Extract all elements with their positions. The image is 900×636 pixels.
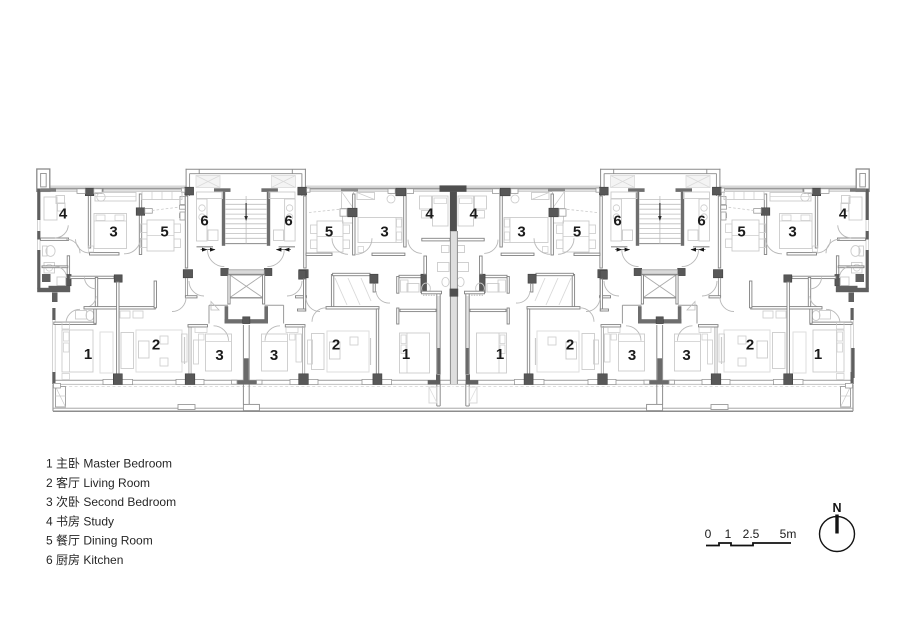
svg-text:1: 1 bbox=[725, 527, 732, 541]
svg-text:4 书房 Study: 4 书房 Study bbox=[46, 513, 114, 528]
svg-text:6: 6 bbox=[200, 213, 208, 230]
svg-text:3: 3 bbox=[109, 224, 117, 241]
svg-text:5 餐厅 Dining Room: 5 餐厅 Dining Room bbox=[46, 533, 153, 548]
svg-text:1 主卧 Master Bedroom: 1 主卧 Master Bedroom bbox=[46, 457, 172, 471]
svg-text:6 厨房 Kitchen: 6 厨房 Kitchen bbox=[46, 552, 123, 567]
svg-text:5: 5 bbox=[160, 224, 168, 241]
svg-text:3: 3 bbox=[788, 224, 796, 241]
svg-text:4: 4 bbox=[839, 206, 848, 223]
svg-text:3 次卧 Second Bedroom: 3 次卧 Second Bedroom bbox=[46, 495, 176, 509]
svg-text:N: N bbox=[832, 501, 841, 515]
svg-text:5: 5 bbox=[325, 224, 333, 241]
svg-text:1: 1 bbox=[496, 346, 504, 363]
svg-text:4: 4 bbox=[59, 206, 68, 223]
svg-text:1: 1 bbox=[814, 346, 822, 363]
svg-text:3: 3 bbox=[517, 224, 525, 241]
svg-text:1: 1 bbox=[402, 346, 410, 363]
svg-text:6: 6 bbox=[284, 213, 292, 230]
svg-text:2 客厅 Living Room: 2 客厅 Living Room bbox=[46, 475, 150, 490]
svg-text:2.5: 2.5 bbox=[743, 527, 760, 541]
svg-text:4: 4 bbox=[470, 206, 479, 223]
svg-text:1: 1 bbox=[84, 346, 92, 363]
svg-text:0: 0 bbox=[705, 527, 712, 541]
svg-text:3: 3 bbox=[215, 347, 223, 364]
svg-text:6: 6 bbox=[697, 213, 705, 230]
svg-text:3: 3 bbox=[270, 347, 278, 364]
svg-text:3: 3 bbox=[628, 347, 636, 364]
svg-text:5: 5 bbox=[573, 224, 581, 241]
svg-text:2: 2 bbox=[566, 337, 574, 354]
svg-text:3: 3 bbox=[380, 224, 388, 241]
svg-text:2: 2 bbox=[332, 337, 340, 354]
svg-text:2: 2 bbox=[746, 337, 754, 354]
svg-text:5: 5 bbox=[737, 224, 745, 241]
svg-text:2: 2 bbox=[152, 337, 160, 354]
svg-text:3: 3 bbox=[682, 347, 690, 364]
svg-text:4: 4 bbox=[425, 206, 434, 223]
svg-text:6: 6 bbox=[613, 213, 621, 230]
svg-text:5m: 5m bbox=[780, 527, 797, 541]
